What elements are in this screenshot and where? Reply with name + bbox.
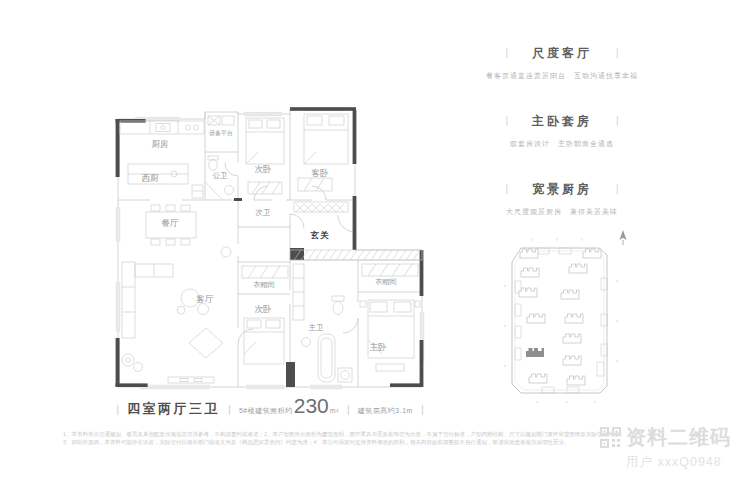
room-label-master-bath: 主卫: [309, 323, 324, 332]
room-label-bedroom-3: 次卧: [255, 304, 273, 314]
highlight-desc: 双套房设计 主卧朝南全通透: [462, 139, 662, 148]
watermark-brand-row: 资料二维码: [600, 424, 740, 451]
disclaimer-text: 1、本资料所示交通规划、教育及其他配套设施信息仅供参考，不构成要约或承诺；2、本…: [63, 430, 643, 446]
room-label-public-bath: 公卫: [213, 171, 228, 180]
room-label-bedroom-2: 次卧: [255, 164, 273, 174]
highlight-title-row: | 尺度客厅 |: [462, 46, 662, 60]
divider-pipe: |: [616, 114, 619, 128]
room-label-utility-platform: 设备平台: [209, 129, 233, 137]
perimeter-units: [515, 238, 607, 393]
room-label-foyer: 玄关: [310, 230, 330, 240]
highlight-title: 宽景厨房: [532, 182, 592, 196]
unit-summary-bar: | 四室两厅三卫 | 5#楼建筑面积约 230 m² | 建筑层高约3.1m |: [60, 394, 480, 418]
watermark-brand: 资料二维码: [626, 424, 731, 451]
room-label-west-kitchen: 西厨: [142, 173, 160, 183]
north-arrow-icon: [620, 230, 627, 245]
room-label-guest-bedroom: 客卧: [312, 168, 330, 178]
room-label-closet-right: 衣帽间: [376, 278, 397, 286]
floorplan-page: 厨房 西厨 设备平台 公卫 次卧 客卧 餐厅 次卫 玄关 衣帽间 客厅 次卧 衣…: [0, 0, 740, 497]
divider-pipe: |: [228, 403, 231, 415]
floor-height: 建筑层高约3.1m: [358, 406, 413, 416]
room-label-master-bedroom: 主卧: [370, 342, 388, 352]
room-label-kitchen: 厨房: [152, 139, 169, 149]
building-footprints: [519, 249, 601, 385]
highlight-title: 尺度客厅: [532, 46, 592, 60]
divider-pipe: |: [421, 403, 424, 415]
area-label: 5#楼建筑面积约: [239, 406, 293, 416]
watermark: 资料二维码 用户 xxxQ0948: [600, 424, 740, 471]
area-value: 230: [294, 394, 329, 418]
divider-pipe: |: [505, 182, 508, 196]
disclaimer-line-1: 1、本资料所示交通规划、教育及其他配套设施信息仅供参考，不构成要约或承诺；2、本…: [63, 430, 643, 438]
divider-pipe: |: [505, 114, 508, 128]
highlight-title-row: | 主卧套房 |: [462, 114, 662, 128]
disclaimer-line-2: 3、因制作原因，本资料可能存在误差，实际交付以相关部门核发文件及《商品房买卖合同…: [63, 438, 643, 446]
highlight-desc: 大尺度观景厨房 兼得美景美味: [462, 207, 662, 216]
highlight-title: 主卧套房: [532, 114, 592, 128]
unit-area: 5#楼建筑面积约 230 m²: [239, 394, 339, 418]
divider-pipe: |: [116, 403, 119, 415]
highlight-master-suite: | 主卧套房 | 双套房设计 主卧朝南全通透: [462, 114, 662, 148]
room-label-bath-2: 次卫: [256, 208, 271, 217]
highlight-title-row: | 宽景厨房 |: [462, 182, 662, 196]
floor-plan: 厨房 西厨 设备平台 公卫 次卧 客卧 餐厅 次卫 玄关 衣帽间 客厅 次卧 衣…: [110, 102, 460, 392]
highlight-kitchen: | 宽景厨房 | 大尺度观景厨房 兼得美景美味: [462, 182, 662, 216]
highlight-living-room: | 尺度客厅 | 餐客贯通直连赏景阳台 互动沟通悦享幸福: [462, 46, 662, 80]
highlighted-building-5: [526, 348, 544, 357]
divider-pipe: |: [616, 182, 619, 196]
unit-layout: 四室两厅三卫: [127, 400, 220, 418]
qr-code-icon: [600, 427, 621, 448]
area-unit: m²: [330, 407, 339, 414]
divider-pipe: |: [347, 403, 350, 415]
highlights-panel: | 尺度客厅 | 餐客贯通直连赏景阳台 互动沟通悦享幸福 | 主卧套房 | 双套…: [462, 46, 662, 250]
room-label-closet-left: 衣帽间: [254, 281, 275, 289]
room-label-living: 客厅: [197, 294, 215, 304]
divider-pipe: |: [505, 46, 508, 60]
site-plan: [497, 226, 647, 406]
room-label-dining: 餐厅: [162, 218, 180, 228]
highlight-desc: 餐客贯通直连赏景阳台 互动沟通悦享幸福: [462, 71, 662, 80]
watermark-user: 用户 xxxQ0948: [626, 454, 740, 471]
divider-pipe: |: [616, 46, 619, 60]
